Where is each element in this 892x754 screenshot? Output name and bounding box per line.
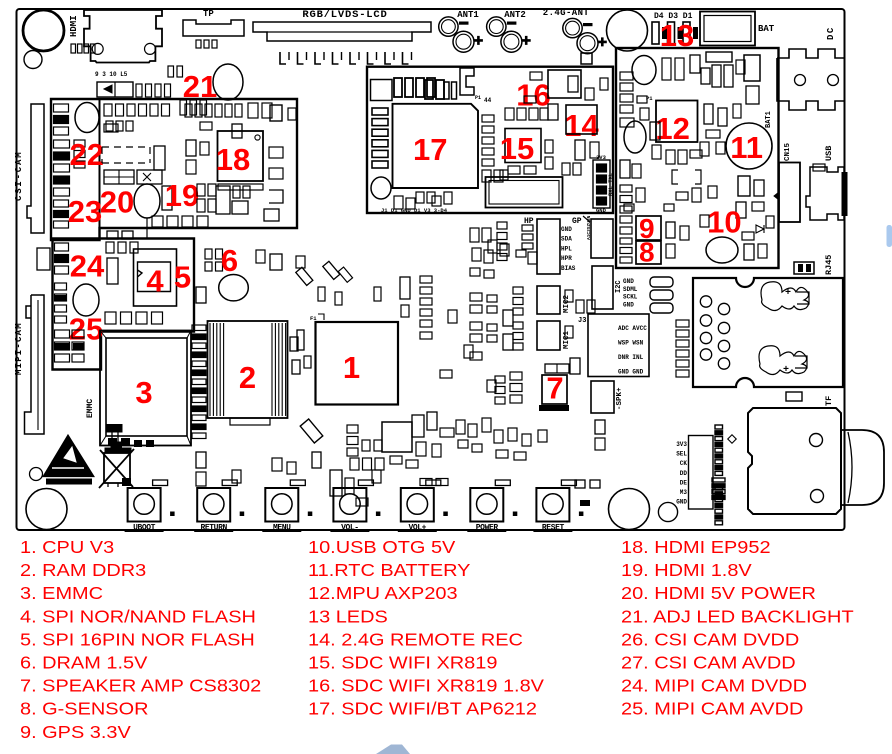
svg-text:ANT1: ANT1	[457, 10, 479, 20]
svg-text:22: 22	[69, 137, 103, 172]
svg-text:2. RAM DDR3: 2. RAM DDR3	[20, 560, 146, 579]
svg-text:RGB/LVDS-LCD: RGB/LVDS-LCD	[302, 9, 387, 21]
svg-text:A1C2SZU3N: A1C2SZU3N	[586, 215, 592, 240]
svg-text:GP: GP	[572, 217, 582, 226]
svg-text:25. MIPI CAM AVDD: 25. MIPI CAM AVDD	[621, 699, 803, 718]
svg-text:WSP WSN: WSP WSN	[618, 340, 644, 347]
svg-text:CSI-CAM: CSI-CAM	[14, 151, 24, 201]
svg-text:TF: TF	[824, 396, 834, 406]
svg-text:24: 24	[70, 249, 105, 284]
svg-text:GND: GND	[623, 301, 634, 308]
svg-text:SDA: SDA	[561, 236, 572, 243]
svg-text:16: 16	[516, 78, 550, 113]
svg-text:GND: GND	[596, 207, 607, 214]
svg-text:P1: P1	[475, 95, 481, 101]
svg-text:ADC AVCC: ADC AVCC	[618, 325, 647, 332]
svg-text:19. HDMI 1.8V: 19. HDMI 1.8V	[621, 560, 752, 579]
svg-text:BIAS: BIAS	[561, 265, 576, 272]
svg-text:CN15: CN15	[784, 142, 792, 161]
svg-text:1. CPU V3: 1. CPU V3	[20, 537, 114, 556]
svg-text:-SPK+: -SPK+	[616, 387, 624, 410]
svg-text:12.MPU AXP203: 12.MPU AXP203	[308, 584, 458, 603]
svg-text:M3: M3	[680, 489, 688, 496]
svg-text:3. EMMC: 3. EMMC	[20, 584, 103, 603]
svg-text:SEL: SEL	[676, 451, 687, 458]
svg-text:10.USB OTG 5V: 10.USB OTG 5V	[308, 537, 456, 556]
svg-text:18: 18	[216, 142, 250, 177]
svg-text:15. SDC WIFI XR819: 15. SDC WIFI XR819	[308, 653, 497, 672]
svg-text:SDML: SDML	[623, 286, 638, 293]
svg-text:+: +	[783, 365, 789, 376]
svg-text:J3: J3	[578, 317, 586, 325]
svg-text:DNR INL: DNR INL	[618, 354, 644, 361]
svg-text:TP: TP	[203, 9, 214, 19]
svg-text:RXL TXL: RXL TXL	[607, 172, 614, 196]
svg-text:GND: GND	[561, 226, 572, 233]
svg-text:25: 25	[69, 312, 103, 347]
svg-text:DD: DD	[680, 470, 688, 477]
svg-text:I2C: I2C	[615, 280, 623, 293]
svg-text:27. CSI CAM AVDD: 27. CSI CAM AVDD	[621, 653, 796, 672]
svg-text:GND: GND	[623, 278, 634, 285]
svg-text:2: 2	[239, 360, 256, 395]
svg-text:5. SPI 16PIN NOR FLASH: 5. SPI 16PIN NOR FLASH	[20, 630, 255, 649]
svg-text:14: 14	[564, 108, 599, 143]
svg-text:HDMI: HDMI	[69, 15, 79, 37]
svg-text:HPL: HPL	[561, 245, 572, 252]
svg-text:21. ADJ LED BACKLIGHT: 21. ADJ LED BACKLIGHT	[621, 607, 854, 626]
svg-text:SCKL: SCKL	[623, 294, 638, 301]
svg-text:4: 4	[146, 263, 164, 298]
svg-text:BAT1: BAT1	[765, 111, 773, 128]
svg-text:17. SDC WIFI/BT AP6212: 17. SDC WIFI/BT AP6212	[308, 699, 537, 718]
svg-text:+: +	[785, 288, 791, 299]
svg-text:GND: GND	[676, 499, 687, 506]
svg-text:3V3: 3V3	[676, 441, 687, 448]
svg-text:8. G-SENSOR: 8. G-SENSOR	[20, 699, 148, 718]
svg-text:USB: USB	[824, 146, 834, 161]
svg-text:20. HDMI 5V POWER: 20. HDMI 5V POWER	[621, 584, 816, 603]
svg-text:15: 15	[500, 131, 534, 166]
svg-text:3: 3	[135, 375, 152, 410]
svg-text:MIC1: MIC1	[563, 330, 571, 349]
svg-text:EMMC: EMMC	[86, 399, 95, 418]
svg-text:1: 1	[343, 350, 360, 385]
svg-text:2.4G-ANT: 2.4G-ANT	[543, 8, 590, 18]
svg-text:GND GND: GND GND	[618, 369, 644, 376]
svg-text:20: 20	[100, 184, 134, 219]
svg-text:ANT2: ANT2	[504, 10, 526, 20]
svg-text:13 LEDS: 13 LEDS	[308, 607, 388, 626]
svg-text:19: 19	[165, 178, 199, 213]
svg-text:CK: CK	[680, 460, 688, 467]
svg-text:DE: DE	[680, 479, 688, 486]
svg-text:10: 10	[707, 205, 741, 240]
svg-text:23: 23	[68, 194, 102, 229]
svg-text:44: 44	[484, 97, 492, 104]
svg-text:7. SPEAKER AMP CS8302: 7. SPEAKER AMP CS8302	[20, 676, 261, 695]
svg-text:MIC2: MIC2	[563, 294, 571, 313]
svg-text:MIPI-CAM: MIPI-CAM	[14, 322, 24, 375]
svg-text:26. CSI CAM DVDD: 26. CSI CAM DVDD	[621, 630, 799, 649]
svg-text:HPR: HPR	[561, 255, 572, 262]
svg-text:17: 17	[413, 132, 447, 167]
svg-text:4. SPI NOR/NAND FLASH: 4. SPI NOR/NAND FLASH	[20, 607, 256, 626]
svg-text:8: 8	[639, 237, 655, 268]
svg-text:14. 2.4G REMOTE REC: 14. 2.4G REMOTE REC	[308, 630, 523, 649]
svg-text:11: 11	[730, 130, 763, 165]
svg-text:6. DRAM 1.5V: 6. DRAM 1.5V	[20, 653, 148, 672]
svg-text:11.RTC BATTERY: 11.RTC BATTERY	[308, 560, 470, 579]
svg-text:16. SDC WIFI XR819 1.8V: 16. SDC WIFI XR819 1.8V	[308, 676, 545, 695]
svg-text:24. MIPI CAM DVDD: 24. MIPI CAM DVDD	[621, 676, 807, 695]
svg-text:DC: DC	[826, 26, 836, 40]
svg-text:9 3 10 L5: 9 3 10 L5	[95, 71, 128, 78]
svg-text:9. GPS 3.3V: 9. GPS 3.3V	[20, 722, 131, 741]
svg-text:7: 7	[546, 371, 563, 406]
svg-text:J1 D1 GND D1 V3 3-D4: J1 D1 GND D1 V3 3-D4	[381, 207, 448, 214]
svg-text:6: 6	[221, 243, 238, 278]
svg-text:RJ45: RJ45	[824, 255, 834, 275]
svg-text:5: 5	[174, 260, 191, 295]
svg-text:18. HDMI EP952: 18. HDMI EP952	[621, 537, 771, 556]
svg-text:BAT: BAT	[758, 24, 775, 34]
